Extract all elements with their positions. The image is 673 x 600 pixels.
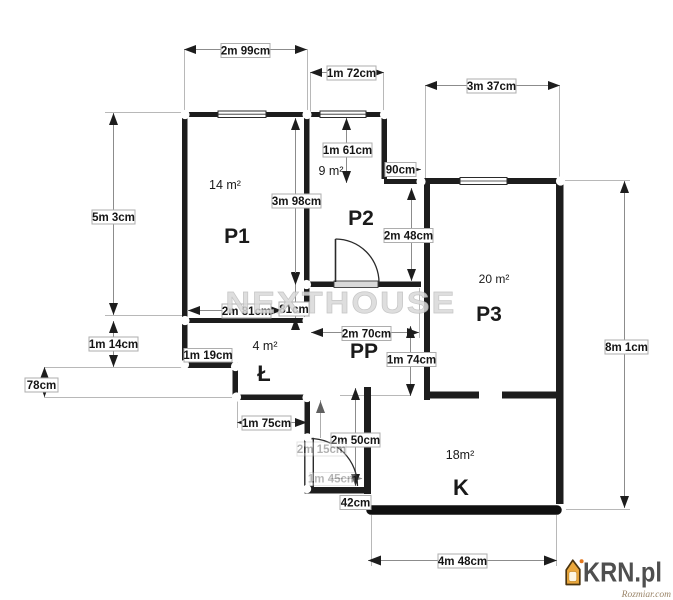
svg-text:42cm: 42cm bbox=[341, 498, 370, 510]
svg-text:1m 45cm: 1m 45cm bbox=[308, 474, 357, 486]
svg-text:Ł: Ł bbox=[257, 361, 270, 386]
svg-text:2m 15cm: 2m 15cm bbox=[297, 444, 346, 456]
svg-text:1m 72cm: 1m 72cm bbox=[327, 68, 376, 80]
svg-text:78cm: 78cm bbox=[27, 380, 56, 392]
svg-text:PP: PP bbox=[350, 340, 378, 363]
svg-text:2m 99cm: 2m 99cm bbox=[221, 46, 270, 58]
svg-text:5m 3cm: 5m 3cm bbox=[92, 212, 135, 224]
svg-text:1m 14cm: 1m 14cm bbox=[89, 339, 138, 351]
svg-text:NEXTHOUSE: NEXTHOUSE bbox=[226, 285, 457, 320]
svg-text:2m 70cm: 2m 70cm bbox=[342, 329, 391, 341]
svg-text:1m 19cm: 1m 19cm bbox=[183, 350, 232, 362]
svg-text:1m 74cm: 1m 74cm bbox=[387, 355, 436, 367]
svg-text:P3: P3 bbox=[476, 303, 502, 326]
svg-text:90cm: 90cm bbox=[386, 165, 415, 177]
svg-text:1m 75cm: 1m 75cm bbox=[242, 418, 291, 430]
svg-text:8m 1cm: 8m 1cm bbox=[605, 342, 648, 354]
svg-text:1m 61cm: 1m 61cm bbox=[323, 145, 372, 157]
svg-text:14 m²: 14 m² bbox=[209, 178, 241, 192]
svg-text:4m 48cm: 4m 48cm bbox=[438, 556, 487, 568]
svg-text:K: K bbox=[453, 475, 469, 500]
svg-text:4 m²: 4 m² bbox=[253, 339, 278, 353]
svg-text:Rozmiar.com: Rozmiar.com bbox=[621, 590, 671, 600]
svg-text:3m 37cm: 3m 37cm bbox=[467, 81, 516, 93]
svg-text:18m²: 18m² bbox=[446, 448, 474, 462]
svg-text:KRN.pl: KRN.pl bbox=[583, 557, 662, 588]
svg-text:20 m²: 20 m² bbox=[479, 272, 510, 286]
svg-text:3m 98cm: 3m 98cm bbox=[272, 196, 321, 208]
svg-text:P1: P1 bbox=[224, 225, 250, 248]
svg-text:9 m²: 9 m² bbox=[319, 164, 344, 178]
svg-text:P2: P2 bbox=[348, 207, 374, 230]
svg-text:2m 48cm: 2m 48cm bbox=[384, 231, 433, 243]
